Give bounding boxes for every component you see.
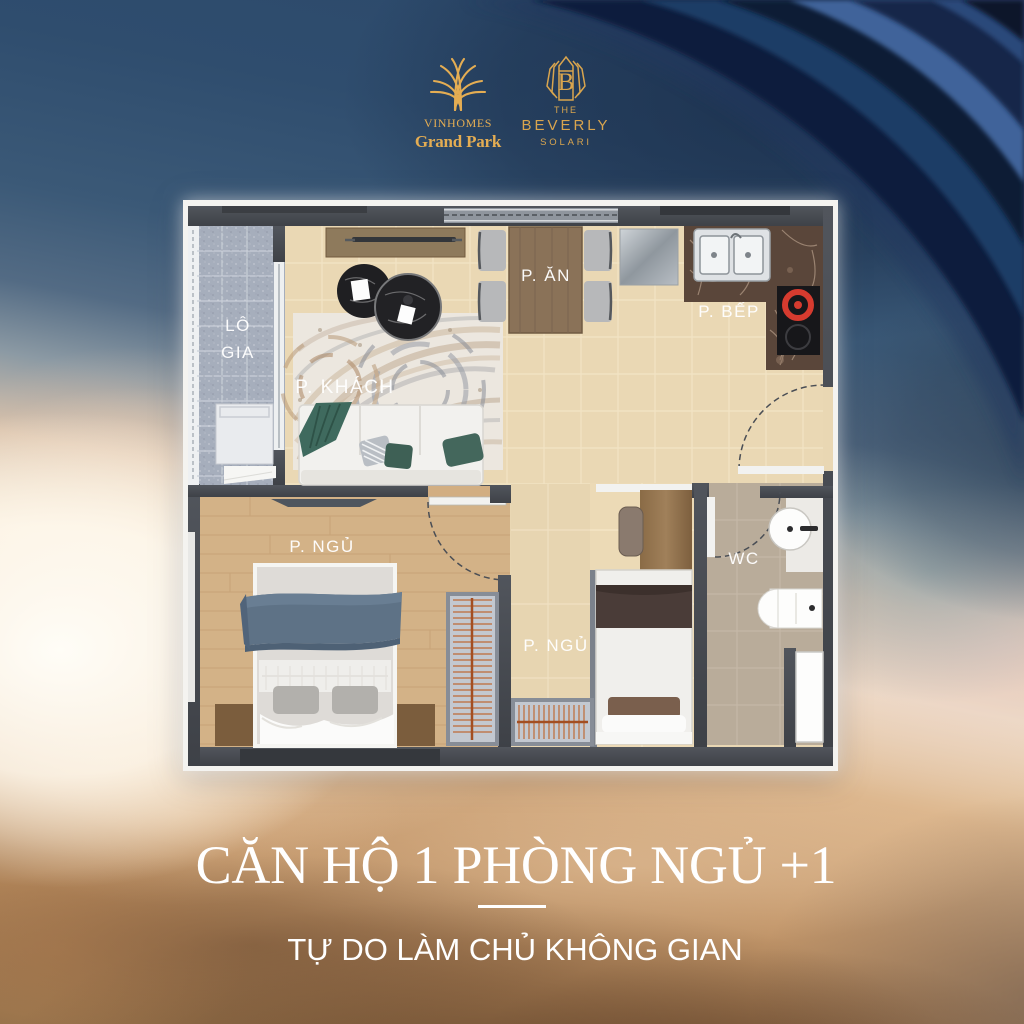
svg-text:P. KHÁCH: P. KHÁCH xyxy=(295,377,394,398)
svg-text:GIA: GIA xyxy=(221,343,255,362)
svg-text:P. NGỦ: P. NGỦ xyxy=(289,537,354,556)
svg-text:P. ĂN: P. ĂN xyxy=(521,266,571,285)
svg-text:P. BẾP: P. BẾP xyxy=(698,302,760,321)
svg-text:LÔ: LÔ xyxy=(225,316,251,335)
svg-text:P. NGỦ: P. NGỦ xyxy=(523,636,588,655)
svg-text:B: B xyxy=(558,69,575,96)
svg-text:WC: WC xyxy=(728,549,759,568)
